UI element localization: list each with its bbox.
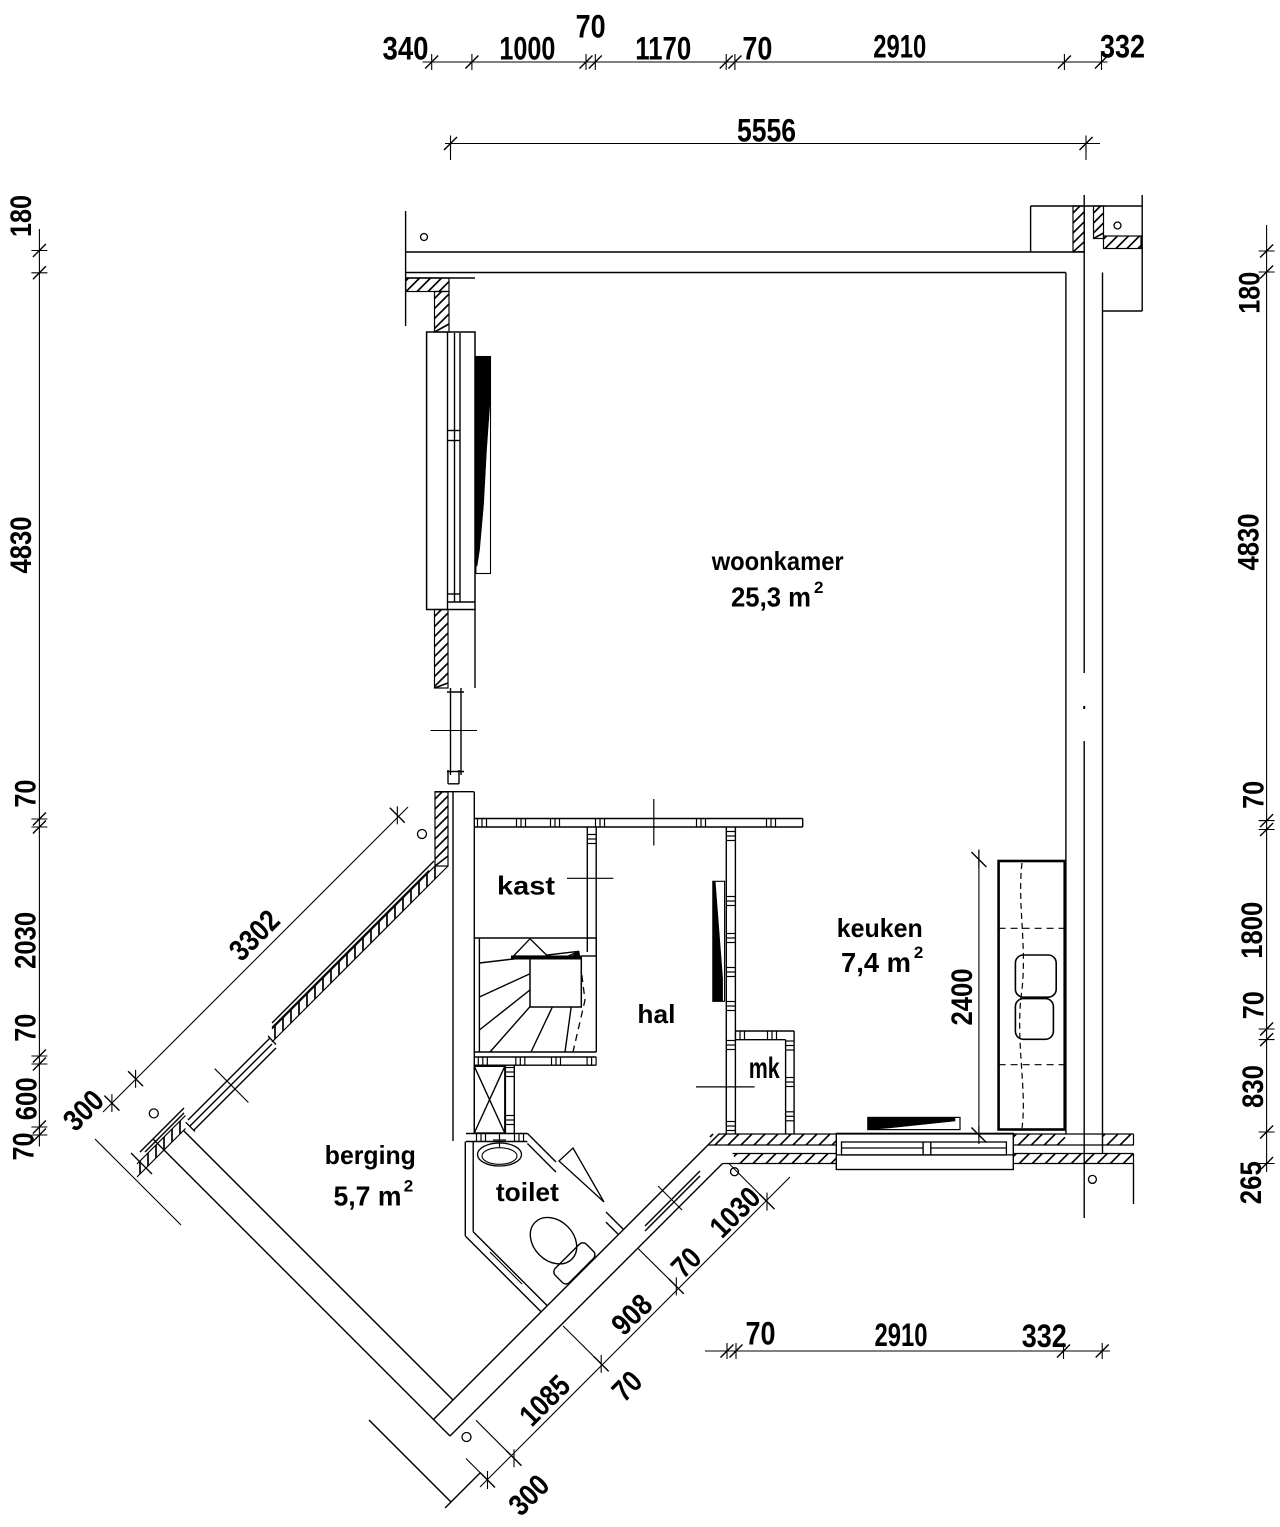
svg-text:830: 830	[1237, 1065, 1270, 1108]
svg-text:kast: kast	[497, 871, 555, 901]
svg-text:4830: 4830	[5, 517, 38, 574]
svg-text:7,4 m: 7,4 m	[841, 947, 911, 978]
svg-text:berging: berging	[325, 1140, 416, 1170]
svg-text:70: 70	[1238, 781, 1271, 809]
svg-text:1800: 1800	[1236, 902, 1269, 959]
svg-text:hal: hal	[637, 999, 675, 1029]
svg-text:2030: 2030	[10, 912, 43, 969]
svg-text:340: 340	[383, 30, 429, 66]
svg-text:70: 70	[10, 1014, 43, 1042]
svg-text:180: 180	[1234, 272, 1267, 314]
svg-text:70: 70	[8, 1133, 41, 1161]
svg-text:keuken: keuken	[837, 913, 923, 943]
svg-text:2910: 2910	[873, 28, 926, 64]
svg-text:180: 180	[5, 195, 38, 237]
svg-text:332: 332	[1022, 1318, 1067, 1354]
svg-text:2: 2	[914, 943, 923, 962]
svg-text:woonkamer: woonkamer	[711, 546, 844, 576]
svg-text:toilet: toilet	[496, 1177, 559, 1207]
svg-text:1170: 1170	[635, 30, 691, 66]
svg-text:4830: 4830	[1233, 514, 1266, 571]
svg-text:265: 265	[1235, 1161, 1268, 1204]
svg-text:mk: mk	[749, 1052, 780, 1085]
svg-text:70: 70	[10, 780, 43, 808]
svg-text:600: 600	[11, 1077, 44, 1120]
svg-text:70: 70	[746, 1315, 776, 1351]
svg-text:70: 70	[742, 30, 772, 66]
svg-text:70: 70	[1238, 991, 1271, 1019]
svg-text:25,3 m: 25,3 m	[731, 581, 811, 612]
svg-text:5,7 m: 5,7 m	[334, 1180, 402, 1211]
svg-text:1000: 1000	[499, 30, 555, 66]
svg-text:70: 70	[576, 8, 606, 44]
svg-text:2: 2	[814, 578, 823, 597]
svg-text:2: 2	[404, 1176, 413, 1195]
svg-text:2400: 2400	[946, 969, 979, 1026]
svg-text:332: 332	[1100, 28, 1145, 64]
svg-text:5556: 5556	[737, 112, 796, 148]
svg-text:2910: 2910	[875, 1317, 928, 1353]
